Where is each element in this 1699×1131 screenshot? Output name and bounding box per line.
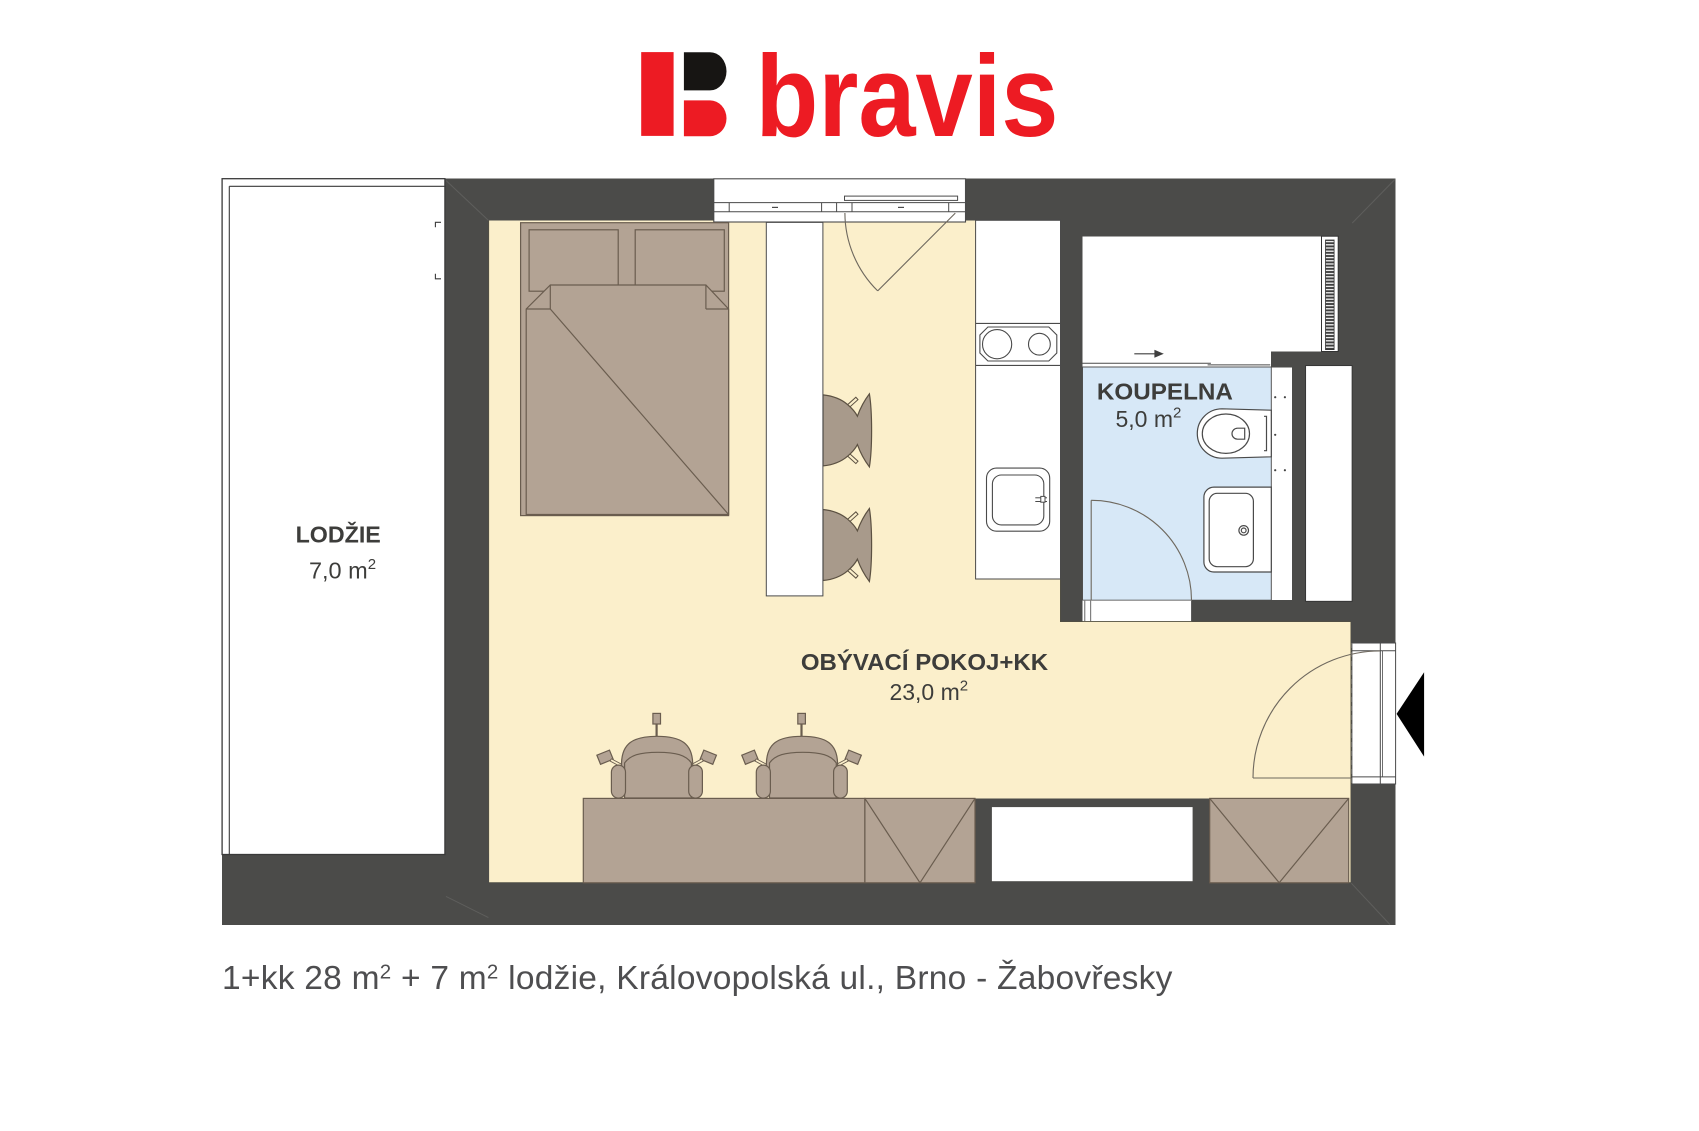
svg-text:KOUPELNA: KOUPELNA [1097, 379, 1233, 405]
svg-text:OBÝVACÍ POKOJ+KK: OBÝVACÍ POKOJ+KK [801, 648, 1049, 675]
svg-text:7,0 m2: 7,0 m2 [309, 556, 376, 584]
svg-text:5,0 m2: 5,0 m2 [1115, 405, 1181, 433]
svg-text:LODŽIE: LODŽIE [296, 521, 381, 548]
svg-text:1+kk 28 m2 + 7 m2 lodžie, Král: 1+kk 28 m2 + 7 m2 lodžie, Královopolská … [222, 960, 1173, 997]
svg-text:bravis: bravis [756, 31, 1059, 161]
svg-text:23,0 m2: 23,0 m2 [889, 678, 968, 706]
